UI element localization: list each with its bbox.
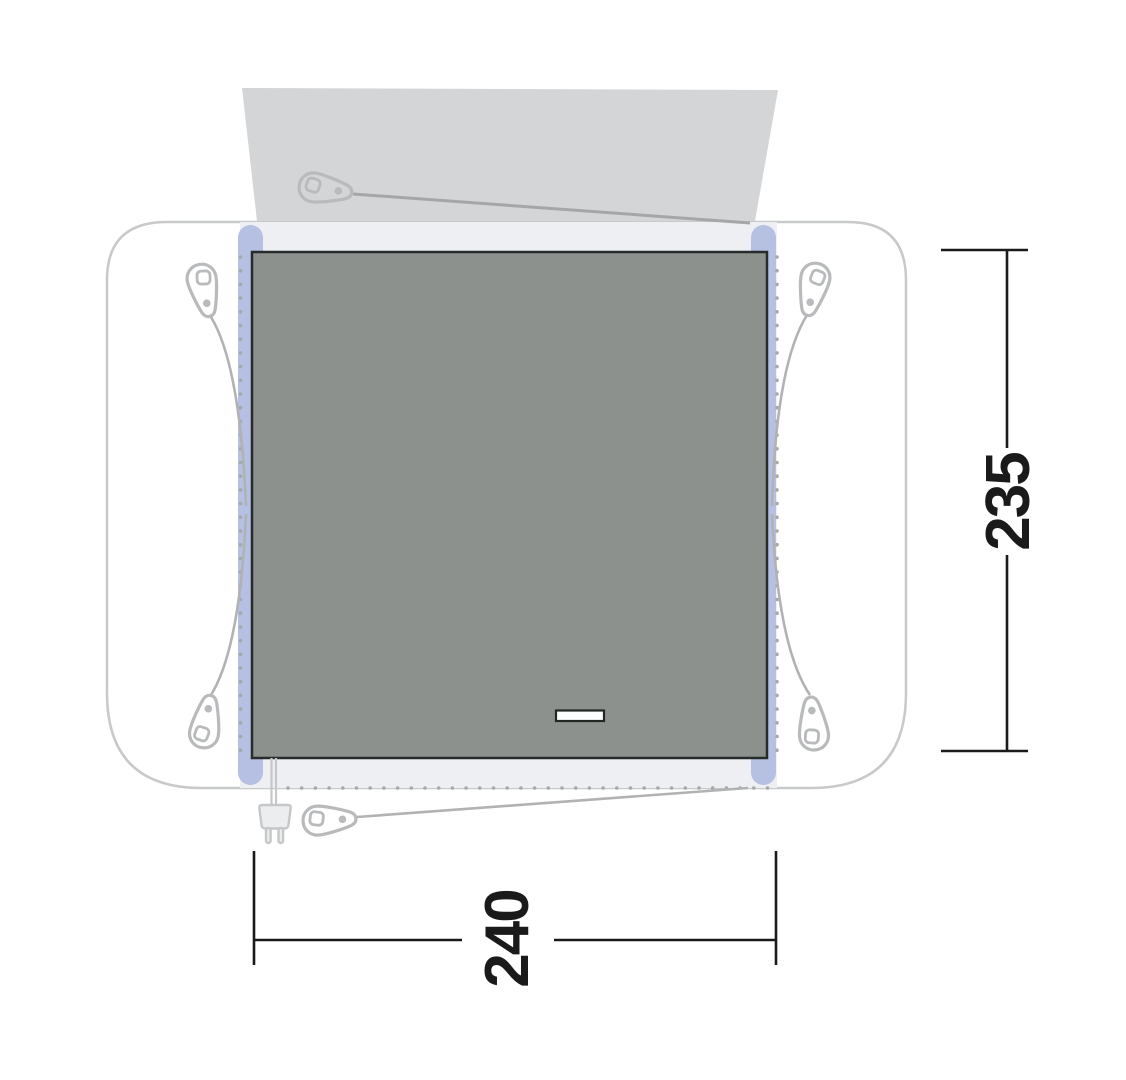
floorplan-drawing (0, 0, 1126, 1080)
peg-icon-left-top (184, 262, 223, 320)
door-vent-marker (556, 711, 604, 722)
width-dimension-label: 240 (477, 890, 539, 987)
floor-area (252, 252, 767, 758)
peg-icon-bottom (302, 804, 356, 836)
peg-icon-right-top (793, 261, 832, 319)
height-dimension-label: 235 (978, 453, 1040, 550)
guyline-bottom (357, 788, 748, 817)
awning-floorplan: 235 240 (0, 0, 1126, 1080)
peg-icon-left-bottom (187, 693, 225, 750)
peg-icon-right-bottom (796, 696, 830, 751)
